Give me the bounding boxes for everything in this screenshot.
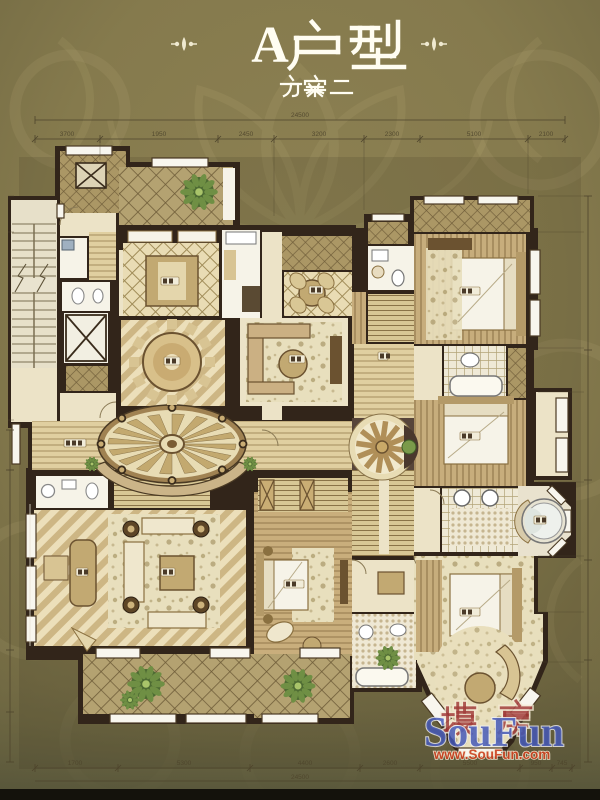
- svg-text:1700: 1700: [68, 760, 83, 767]
- svg-text:2100: 2100: [539, 131, 554, 138]
- svg-text:5300: 5300: [177, 760, 192, 767]
- svg-text:2300: 2300: [385, 131, 400, 138]
- svg-text:24500: 24500: [291, 774, 309, 781]
- svg-text:745: 745: [557, 760, 568, 767]
- svg-text:A: A: [251, 17, 289, 74]
- svg-text:www.SouFun.com: www.SouFun.com: [433, 747, 551, 762]
- svg-text:2600: 2600: [383, 760, 398, 767]
- svg-text:1950: 1950: [152, 131, 167, 138]
- svg-text:5100: 5100: [467, 131, 482, 138]
- svg-text:3700: 3700: [60, 131, 75, 138]
- svg-text:24500: 24500: [291, 112, 309, 119]
- svg-text:3200: 3200: [312, 131, 327, 138]
- svg-text:2450: 2450: [239, 131, 254, 138]
- svg-text:4400: 4400: [298, 760, 313, 767]
